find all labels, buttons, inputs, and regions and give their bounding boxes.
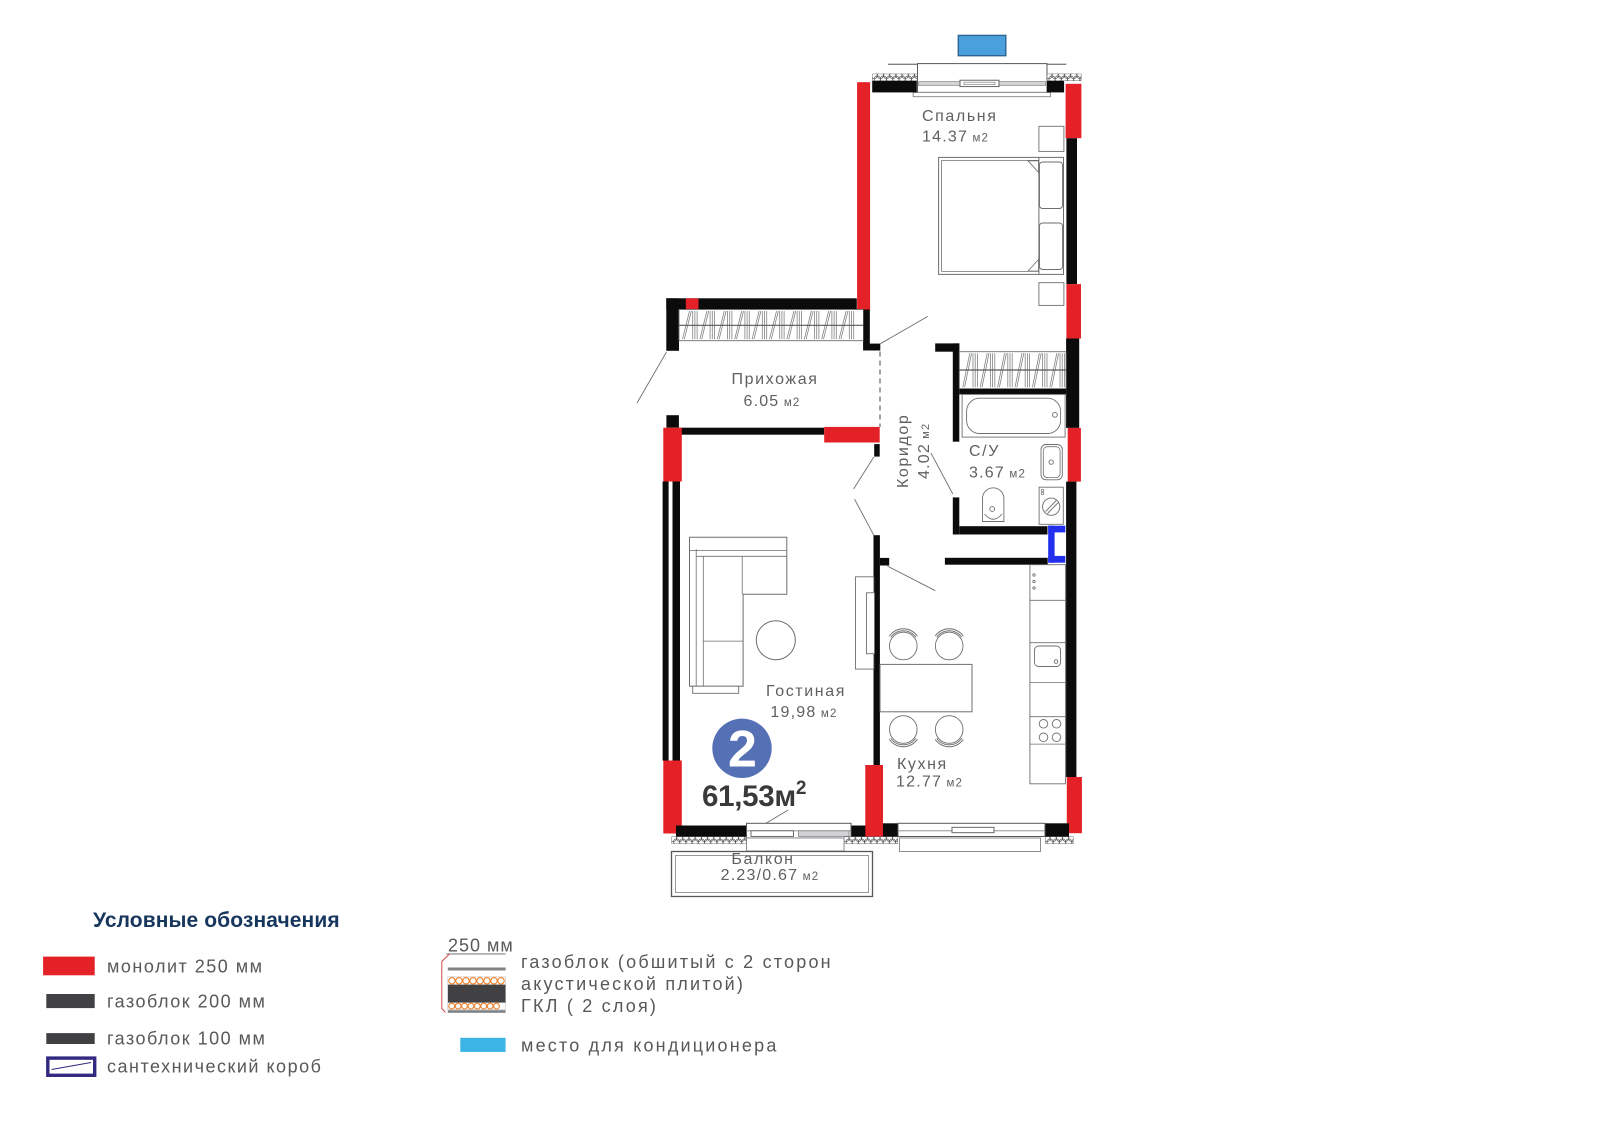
svg-text:Балкон: Балкон	[731, 851, 794, 868]
svg-text:250 мм: 250 мм	[448, 936, 514, 956]
svg-text:61,53м2: 61,53м2	[702, 778, 806, 813]
svg-text:Условные обозначения: Условные обозначения	[93, 909, 340, 932]
svg-text:Коридор: Коридор	[895, 414, 912, 488]
svg-text:Прихожая: Прихожая	[732, 371, 819, 388]
svg-text:газоблок 200 мм: газоблок 200 мм	[107, 992, 266, 1012]
svg-text:место для кондиционера: место для кондиционера	[521, 1036, 779, 1056]
svg-text:С/У: С/У	[969, 443, 1000, 460]
svg-text:газоблок 100 мм: газоблок 100 мм	[107, 1029, 266, 1049]
svg-text:Кухня: Кухня	[897, 756, 948, 773]
svg-text:2: 2	[728, 721, 757, 779]
svg-text:сантехнический короб: сантехнический короб	[107, 1057, 322, 1077]
svg-text:газоблок (обшитый с 2 сторон: газоблок (обшитый с 2 сторон	[521, 952, 833, 972]
svg-text:ГКЛ ( 2 слоя): ГКЛ ( 2 слоя)	[521, 996, 658, 1016]
svg-text:акустической плитой): акустической плитой)	[521, 974, 745, 994]
svg-text:монолит 250 мм: монолит 250 мм	[107, 957, 264, 977]
svg-text:Спальня: Спальня	[922, 108, 998, 125]
svg-text:Гостиная: Гостиная	[766, 683, 846, 700]
